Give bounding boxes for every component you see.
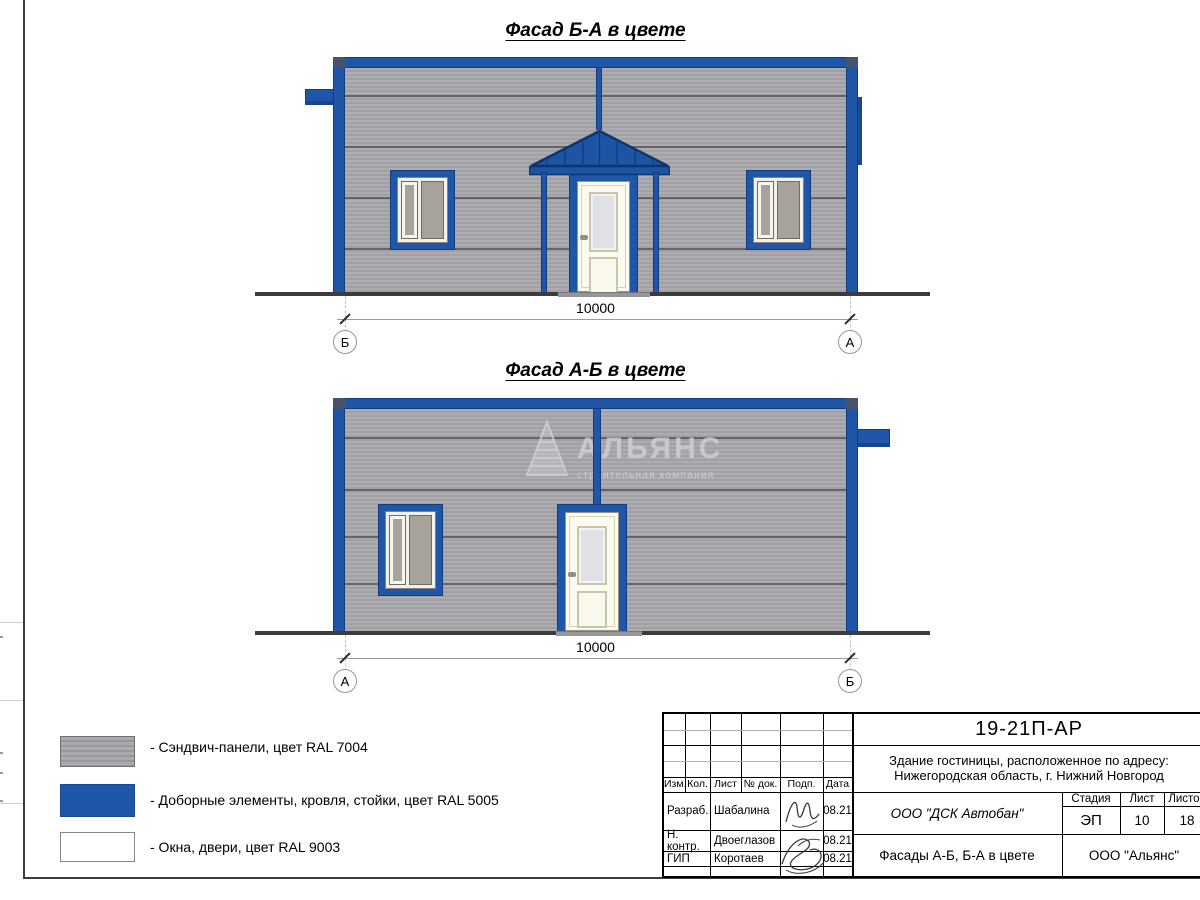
drawing-title: Фасады А-Б, Б-А в цвете — [852, 834, 1062, 876]
dimension-value: 10000 — [333, 639, 858, 655]
project-address: Здание гостиницы, расположенное по адрес… — [852, 753, 1200, 783]
signer-name: Шабалина — [714, 792, 780, 830]
contractor-name: ООО "ДСК Автобан" — [852, 792, 1062, 834]
door-glazing — [577, 526, 607, 585]
sheet-value: 10 — [1120, 806, 1164, 834]
window-fixed-pane — [777, 181, 800, 239]
sheet-frame-left — [23, 0, 25, 879]
legend-label: - Окна, двери, цвет RAL 9003 — [150, 832, 340, 862]
project-address-line2: Нижегородская область, г. Нижний Новгоро… — [852, 768, 1200, 783]
signer-role: ГИП — [667, 851, 710, 866]
side-trim-tab — [858, 97, 862, 165]
stage-value: ЭП — [1062, 806, 1120, 834]
facade-ab-title: Фасад А-Б в цвете — [333, 360, 858, 383]
corner-cap — [333, 57, 345, 68]
project-address-line1: Здание гостиницы, расположенное по адрес… — [852, 753, 1200, 768]
roof-flashing — [333, 57, 858, 68]
window-casement-pane — [757, 181, 774, 239]
edge-stamp-text-fragment — [0, 800, 3, 802]
corner-cap — [333, 398, 345, 409]
signer-name: Двоеглазов — [714, 830, 780, 851]
organization-name: ООО "Альянс" — [1062, 834, 1200, 876]
company-watermark: АЛЬЯНС строительная компания — [525, 420, 723, 481]
signer-date: 08.21 — [823, 792, 852, 830]
sheets-value: 18 — [1164, 806, 1200, 834]
axis-marker: А — [838, 330, 862, 354]
gutter-outlet-right — [857, 429, 890, 447]
edge-stamp-line — [0, 803, 23, 804]
dimension-line — [337, 658, 858, 659]
stage-label: Стадия — [1062, 792, 1120, 807]
axis-marker: Б — [333, 330, 357, 354]
dimension-line — [337, 319, 858, 320]
canopy-post-right — [653, 172, 659, 293]
col-izm: Изм. — [664, 777, 685, 792]
door-leaf — [577, 181, 630, 292]
corner-trim-left — [333, 57, 345, 293]
window-casement-pane — [401, 181, 418, 239]
signature — [782, 794, 822, 830]
title-block-line — [664, 745, 852, 746]
signature — [776, 826, 828, 876]
signer-name: Коротаев — [714, 851, 780, 866]
entrance-door — [557, 504, 627, 632]
legend-swatch-blue — [60, 784, 135, 817]
facade-ba-title-text: Фасад Б-А в цвете — [505, 20, 685, 41]
window-sash — [753, 177, 804, 243]
door-bottom-panel — [589, 257, 618, 294]
door-bottom-panel — [577, 591, 607, 628]
gutter-outlet-left — [305, 89, 334, 105]
door-glazing — [589, 192, 618, 252]
entrance-canopy — [529, 129, 670, 177]
title-block: 19-21П-АР Здание гостиницы, расположенно… — [662, 712, 1200, 878]
facade-ba-drawing — [333, 57, 858, 293]
door-handle — [580, 235, 588, 240]
legend-swatch-white — [60, 832, 135, 862]
legend-swatch-gray — [60, 736, 135, 767]
facade-ab-title-text: Фасад А-Б в цвете — [505, 360, 685, 381]
legend-label: - Доборные элементы, кровля, стойки, цве… — [150, 784, 499, 817]
corner-cap — [846, 398, 858, 409]
window — [746, 170, 811, 250]
downpipe — [593, 409, 601, 504]
edge-stamp-line — [0, 700, 23, 701]
legend-label: - Сэндвич-панели, цвет RAL 7004 — [150, 736, 368, 758]
entrance-door — [569, 173, 638, 293]
corner-cap — [846, 57, 858, 68]
axis-marker: А — [333, 669, 357, 693]
sheet-label: Лист — [1120, 792, 1164, 807]
facade-ab-drawing: АЛЬЯНС строительная компания — [333, 398, 858, 635]
window-casement-pane — [389, 515, 406, 585]
window — [378, 504, 443, 596]
door-step — [558, 292, 650, 297]
corner-trim-right — [846, 57, 858, 293]
title-block-line — [852, 745, 1200, 746]
edge-stamp-text-fragment — [0, 752, 3, 754]
edge-stamp-line — [0, 622, 23, 623]
dimension-value: 10000 — [333, 300, 858, 316]
col-list: Лист — [710, 777, 741, 792]
window-fixed-pane — [409, 515, 432, 585]
window — [390, 170, 455, 250]
alliance-triangle-logo — [525, 420, 569, 478]
col-ndok: № док. — [741, 777, 780, 792]
door-handle — [568, 572, 576, 577]
roof-flashing — [333, 398, 858, 409]
corner-trim-left — [333, 398, 345, 635]
downpipe — [596, 68, 602, 130]
canopy-post-left — [541, 172, 547, 293]
signer-role: Разраб. — [667, 792, 710, 830]
col-kol: Кол. — [685, 777, 710, 792]
door-leaf — [565, 512, 619, 631]
window-fixed-pane — [421, 181, 444, 239]
facade-ba-title: Фасад Б-А в цвете — [333, 20, 858, 43]
col-data: Дата — [823, 777, 852, 792]
window-sash — [385, 511, 436, 589]
drawing-sheet: Фасад Б-А в цвете — [0, 0, 1200, 900]
sheets-label: Листов — [1164, 792, 1200, 807]
window-sash — [397, 177, 448, 243]
title-block-line — [664, 761, 852, 762]
col-podp: Подп. — [780, 777, 823, 792]
edge-stamp-text-fragment — [0, 772, 3, 774]
edge-stamp-text-fragment — [0, 636, 3, 638]
document-number: 19-21П-АР — [852, 715, 1200, 744]
door-step — [556, 631, 642, 636]
signer-role: Н. контр. — [667, 830, 710, 851]
axis-marker: Б — [838, 669, 862, 693]
title-block-line — [664, 730, 852, 731]
